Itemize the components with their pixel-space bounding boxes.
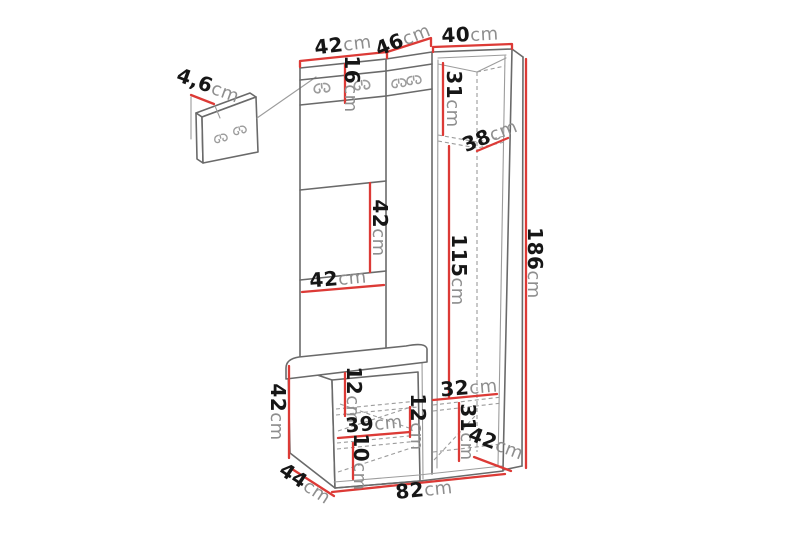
callout-line: [257, 77, 316, 118]
dimension-labels: 4,6cm 42cm 46cm 40cm 16cm 31cm 38cm 42cm…: [174, 17, 547, 509]
cabinet-interior-top-right: [477, 58, 506, 72]
back-panel-seam-upper: [300, 181, 386, 190]
dim-label-total-width: 82cm: [394, 474, 453, 504]
dim-label-cabinet-top-section: 31cm: [442, 70, 466, 127]
dim-label-top-corner-width: 46cm: [372, 17, 434, 61]
cabinet-inner-left: [437, 60, 438, 468]
dim-label-plinth-height: 10cm: [349, 433, 373, 490]
dim-label-shelf-depth: 38cm: [459, 113, 521, 157]
dim-label-bench-height: 42cm: [266, 383, 290, 440]
dim-label-cabinet-bottom-section: 32cm: [439, 373, 498, 402]
dim-label-top-right-width: 40cm: [441, 21, 499, 48]
dim-label-hook-panel-height: 16cm: [340, 55, 364, 112]
dim-label-drawer-height: 12cm: [406, 393, 430, 450]
diagram-canvas: 4,6cm 42cm 46cm 40cm 16cm 31cm 38cm 42cm…: [0, 0, 800, 533]
coat-hook-icon: [314, 83, 330, 93]
coat-hook-icon: [391, 78, 406, 88]
coat-hook-icon: [406, 75, 421, 85]
coat-hooks: [314, 75, 422, 93]
dim-label-open-section-width: 42cm: [308, 264, 367, 293]
cabinet-inner-top: [438, 55, 506, 58]
dim-label-hanging-height: 115cm: [447, 234, 471, 306]
furniture-dimension-diagram: 4,6cm 42cm 46cm 40cm 16cm 31cm 38cm 42cm…: [0, 0, 800, 533]
dim-label-total-height: 186cm: [523, 227, 547, 299]
interior-back-top: [477, 66, 505, 72]
dim-label-open-section-height: 42cm: [368, 199, 392, 256]
cabinet-right-side-edge: [522, 57, 523, 466]
